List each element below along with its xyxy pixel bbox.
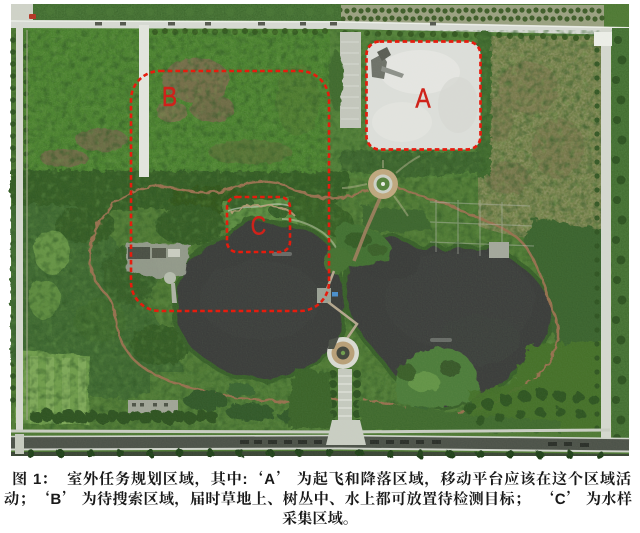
svg-text:A: A	[415, 83, 431, 114]
svg-text:B: B	[162, 82, 177, 113]
svg-text:C: C	[251, 212, 266, 242]
